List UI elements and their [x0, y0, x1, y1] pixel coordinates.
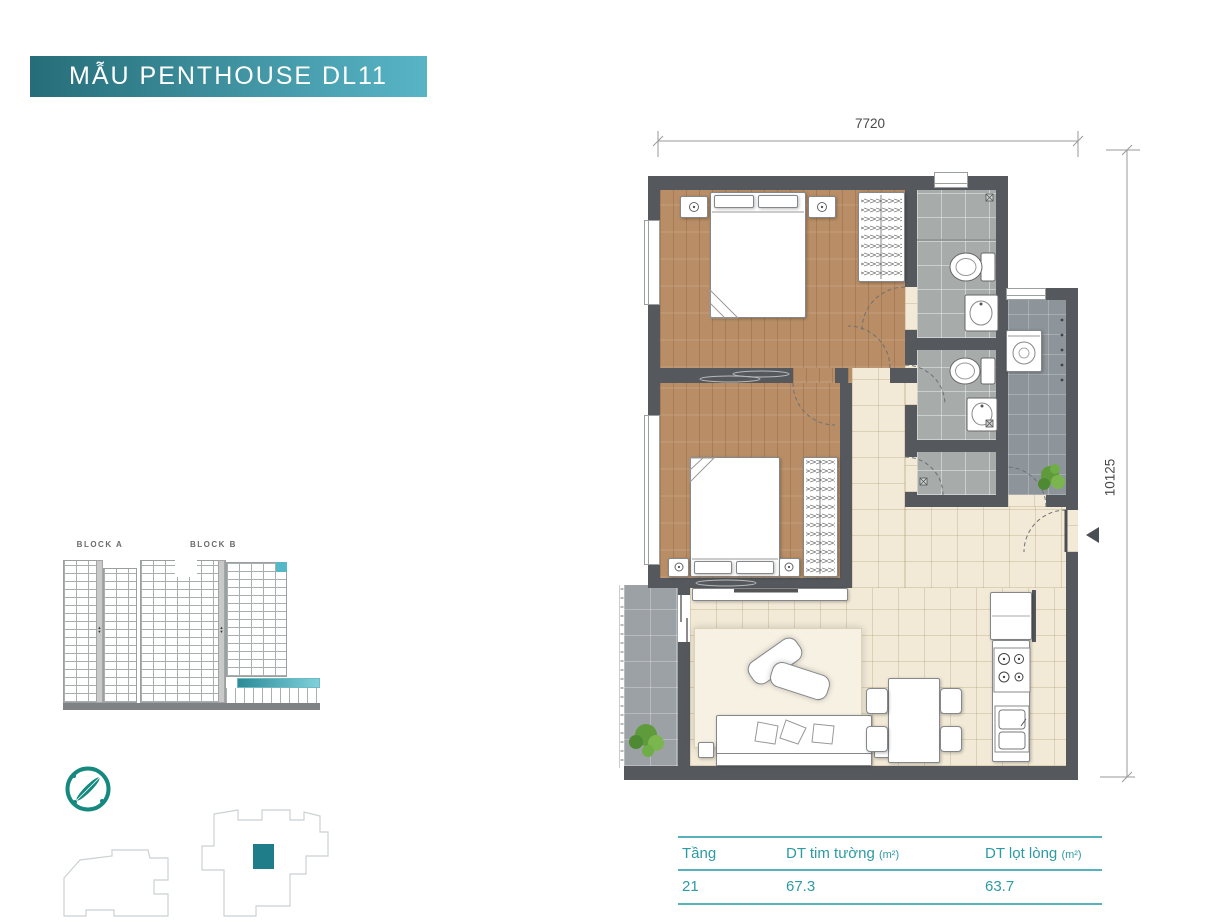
podium-columns — [226, 688, 320, 703]
header-net-label: DT lọt lòng — [985, 845, 1057, 862]
vanity-sink-1 — [965, 295, 998, 331]
header-gross-unit: (m²) — [879, 849, 899, 861]
table-value-gross: 67.3 — [786, 878, 815, 895]
balcony-slider-door — [681, 595, 687, 642]
table-value-floor: 21 — [682, 878, 699, 895]
block-b-lift-arrows: ▲▼ — [218, 626, 225, 634]
page-title: MẪU PENTHOUSE DL11 — [30, 56, 427, 97]
tv — [734, 589, 798, 593]
coat-hooks — [1061, 319, 1064, 382]
table-header-net: DT lọt lòng (m²) — [985, 845, 1082, 862]
plant-balcony — [629, 724, 664, 757]
block-a-lift-arrows: ▲▼ — [96, 626, 103, 634]
bed-2-fold — [690, 458, 778, 559]
toilet-2 — [950, 358, 995, 384]
toilet-1 — [950, 253, 995, 281]
ground-base — [63, 703, 320, 710]
table-line-bottom — [678, 903, 1102, 905]
wardrobe-1-hangers — [861, 195, 902, 279]
header-gross-label: DT tim tường — [786, 845, 875, 862]
floor-plan — [618, 170, 1088, 795]
plant-utility — [1038, 464, 1065, 490]
podium-band — [237, 678, 320, 688]
table-value-net: 63.7 — [985, 878, 1014, 895]
block-b-notch — [175, 560, 197, 577]
wardrobe-2-hangers — [806, 460, 835, 574]
site-selected-unit — [253, 844, 274, 869]
block-a-label: BLOCK A — [63, 540, 137, 549]
block-elevation: BLOCK A BLOCK B ▲▼ ▲▼ — [63, 540, 323, 715]
dimension-height: 10125 — [1103, 443, 1118, 513]
table-line-mid — [678, 869, 1102, 871]
dimension-width: 7720 — [835, 116, 905, 131]
curtain-rails — [696, 371, 789, 586]
entry-arrow-icon — [1086, 527, 1099, 543]
selected-unit-marker — [276, 562, 287, 572]
table-header-floor: Tầng — [682, 845, 716, 862]
table-header-gross: DT tim tường (m²) — [786, 845, 899, 862]
vent-grilles — [920, 194, 993, 485]
table-line-top — [678, 836, 1102, 838]
block-a-tower-right — [103, 568, 137, 703]
block-b-label: BLOCK B — [140, 540, 287, 549]
nightstand-lamps — [675, 203, 827, 572]
site-plan — [52, 798, 337, 923]
kitchen-sink — [995, 706, 1029, 752]
plan-detail-overlay — [618, 170, 1088, 795]
bed-1-fold — [710, 212, 804, 318]
header-net-unit: (m²) — [1061, 849, 1081, 861]
sofa-cushions — [755, 720, 834, 744]
cooktop — [994, 648, 1030, 692]
washing-machine-drum — [1008, 336, 1040, 364]
block-b-tower-right — [226, 562, 287, 677]
block-b-tower-left — [140, 560, 226, 703]
header-floor-label: Tầng — [682, 845, 716, 862]
site-building-left — [64, 850, 168, 916]
